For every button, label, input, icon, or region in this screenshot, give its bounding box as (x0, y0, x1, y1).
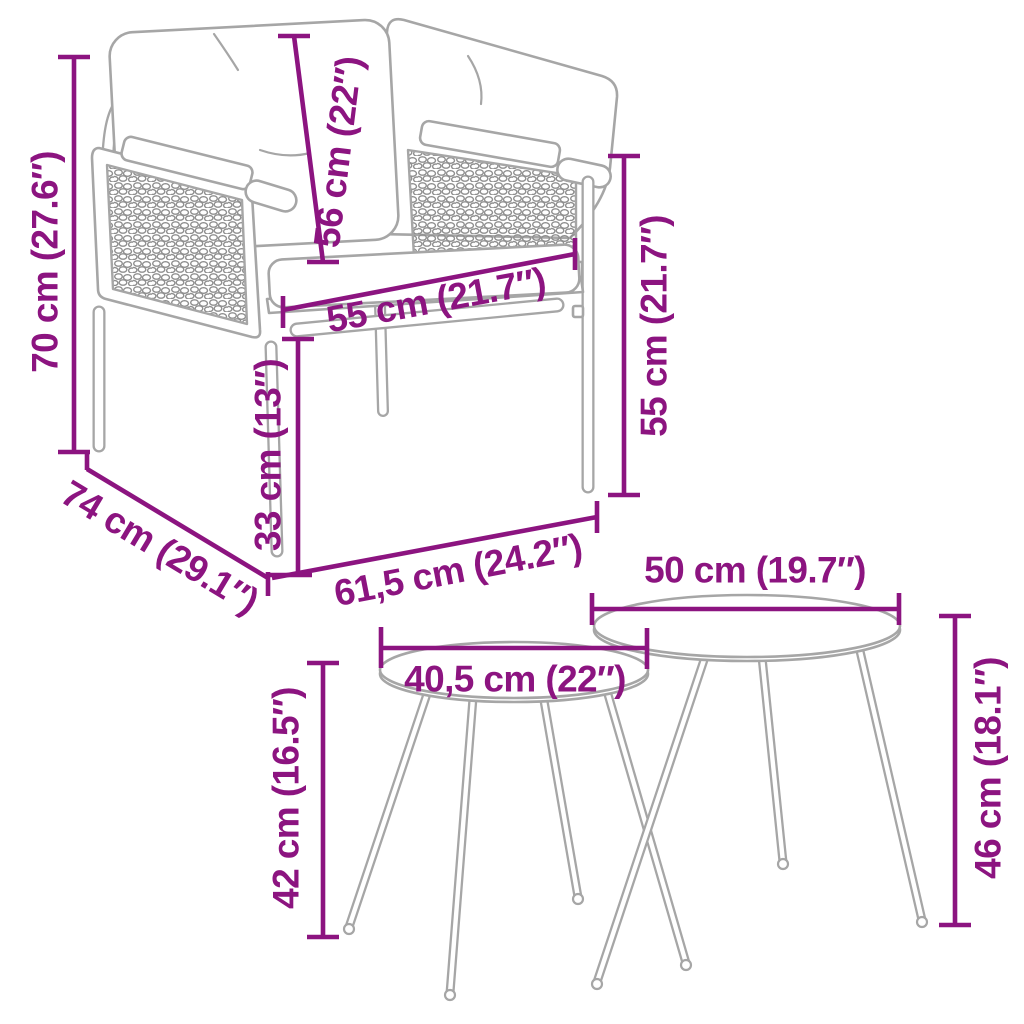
large-table-foot-right (917, 917, 927, 927)
chair-crossbar-bracket (573, 306, 583, 317)
small-table-leg-front-fill (450, 698, 473, 993)
small-table-foot-back (573, 894, 583, 904)
dim-large-table-height: 46 cm (18.1″) (939, 616, 1009, 925)
dimension-diagram-page: 70 cm (27.6″) 56 cm (22″) 55 cm (21.7″) … (0, 0, 1024, 1024)
dim-chair-height-label: 70 cm (27.6″) (25, 151, 66, 373)
dim-small-table-height: 42 cm (16.5″) (266, 663, 340, 937)
dim-large-table-height-label: 46 cm (18.1″) (968, 657, 1009, 879)
large-table-leg-middle-fill (762, 657, 783, 862)
large-table-illustration (594, 595, 922, 982)
dim-chair-height: 70 cm (27.6″) (25, 57, 91, 452)
dim-small-table-diameter-label: 40,5 cm (22″) (404, 659, 626, 700)
dim-chair-seat-height-label: 33 cm (13″) (248, 359, 289, 551)
dim-chair-depth: 74 cm (29.1″) (54, 452, 268, 622)
dim-chair-side-height: 55 cm (21.7″) (608, 156, 675, 495)
dim-large-table-diameter-label: 50 cm (19.7″) (644, 550, 866, 591)
dim-small-table-height-line (307, 663, 339, 937)
dim-chair-side-height-label: 55 cm (21.7″) (634, 215, 675, 437)
small-table-leg-back-fill (543, 695, 578, 897)
dim-chair-width-label: 61,5 cm (24.2″) (331, 526, 586, 614)
large-table-foot-left (592, 979, 602, 989)
large-table-foot-middle (778, 859, 788, 869)
large-table-leg-right-fill (860, 651, 922, 920)
small-table-foot-left (344, 924, 354, 934)
small-table-foot-front (445, 990, 455, 1000)
small-table-foot-right (681, 960, 691, 970)
furniture-dimension-diagram: 70 cm (27.6″) 56 cm (22″) 55 cm (21.7″) … (0, 0, 1024, 1024)
dim-small-table-height-label: 42 cm (16.5″) (266, 687, 307, 909)
dim-large-table-height-line (939, 616, 971, 925)
small-table-leg-left-fill (349, 694, 427, 927)
dim-chair-depth-label: 74 cm (29.1″) (54, 472, 265, 621)
dim-chair-width: 61,5 cm (24.2″) (272, 501, 597, 614)
dim-chair-seat-height: 33 cm (13″) (248, 339, 315, 575)
